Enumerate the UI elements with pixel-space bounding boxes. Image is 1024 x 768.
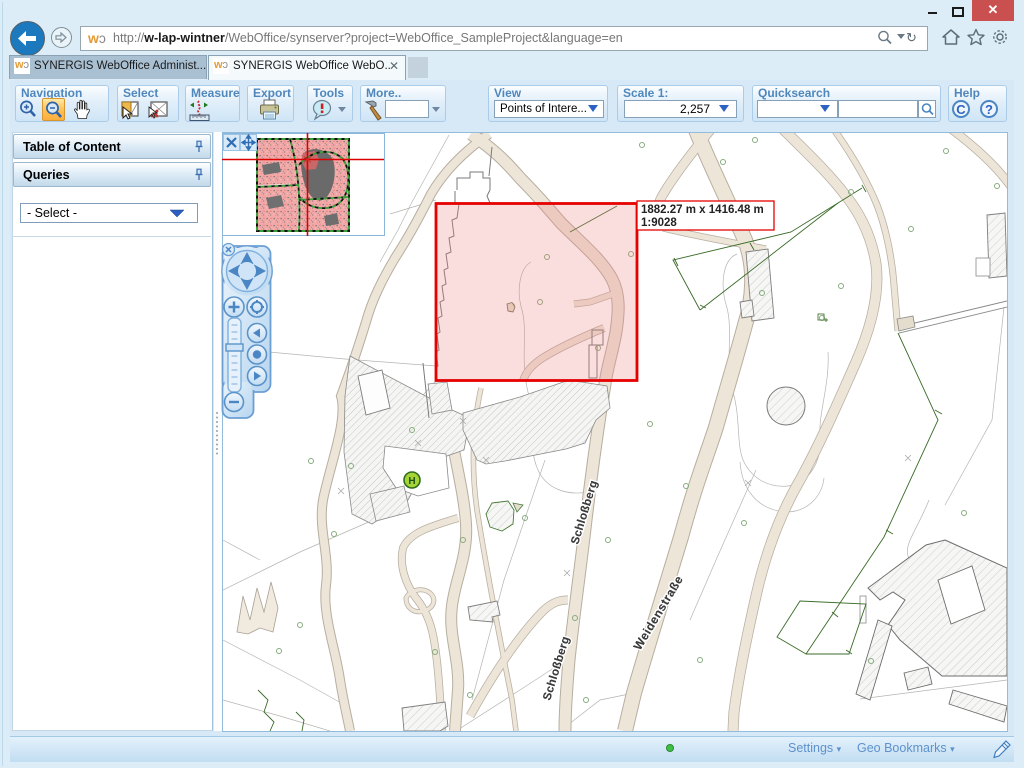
svg-text:1:9028: 1:9028 (641, 217, 677, 229)
svg-text:H: H (408, 476, 415, 487)
svg-text:1882.27 m x 1416.48 m: 1882.27 m x 1416.48 m (641, 204, 764, 216)
